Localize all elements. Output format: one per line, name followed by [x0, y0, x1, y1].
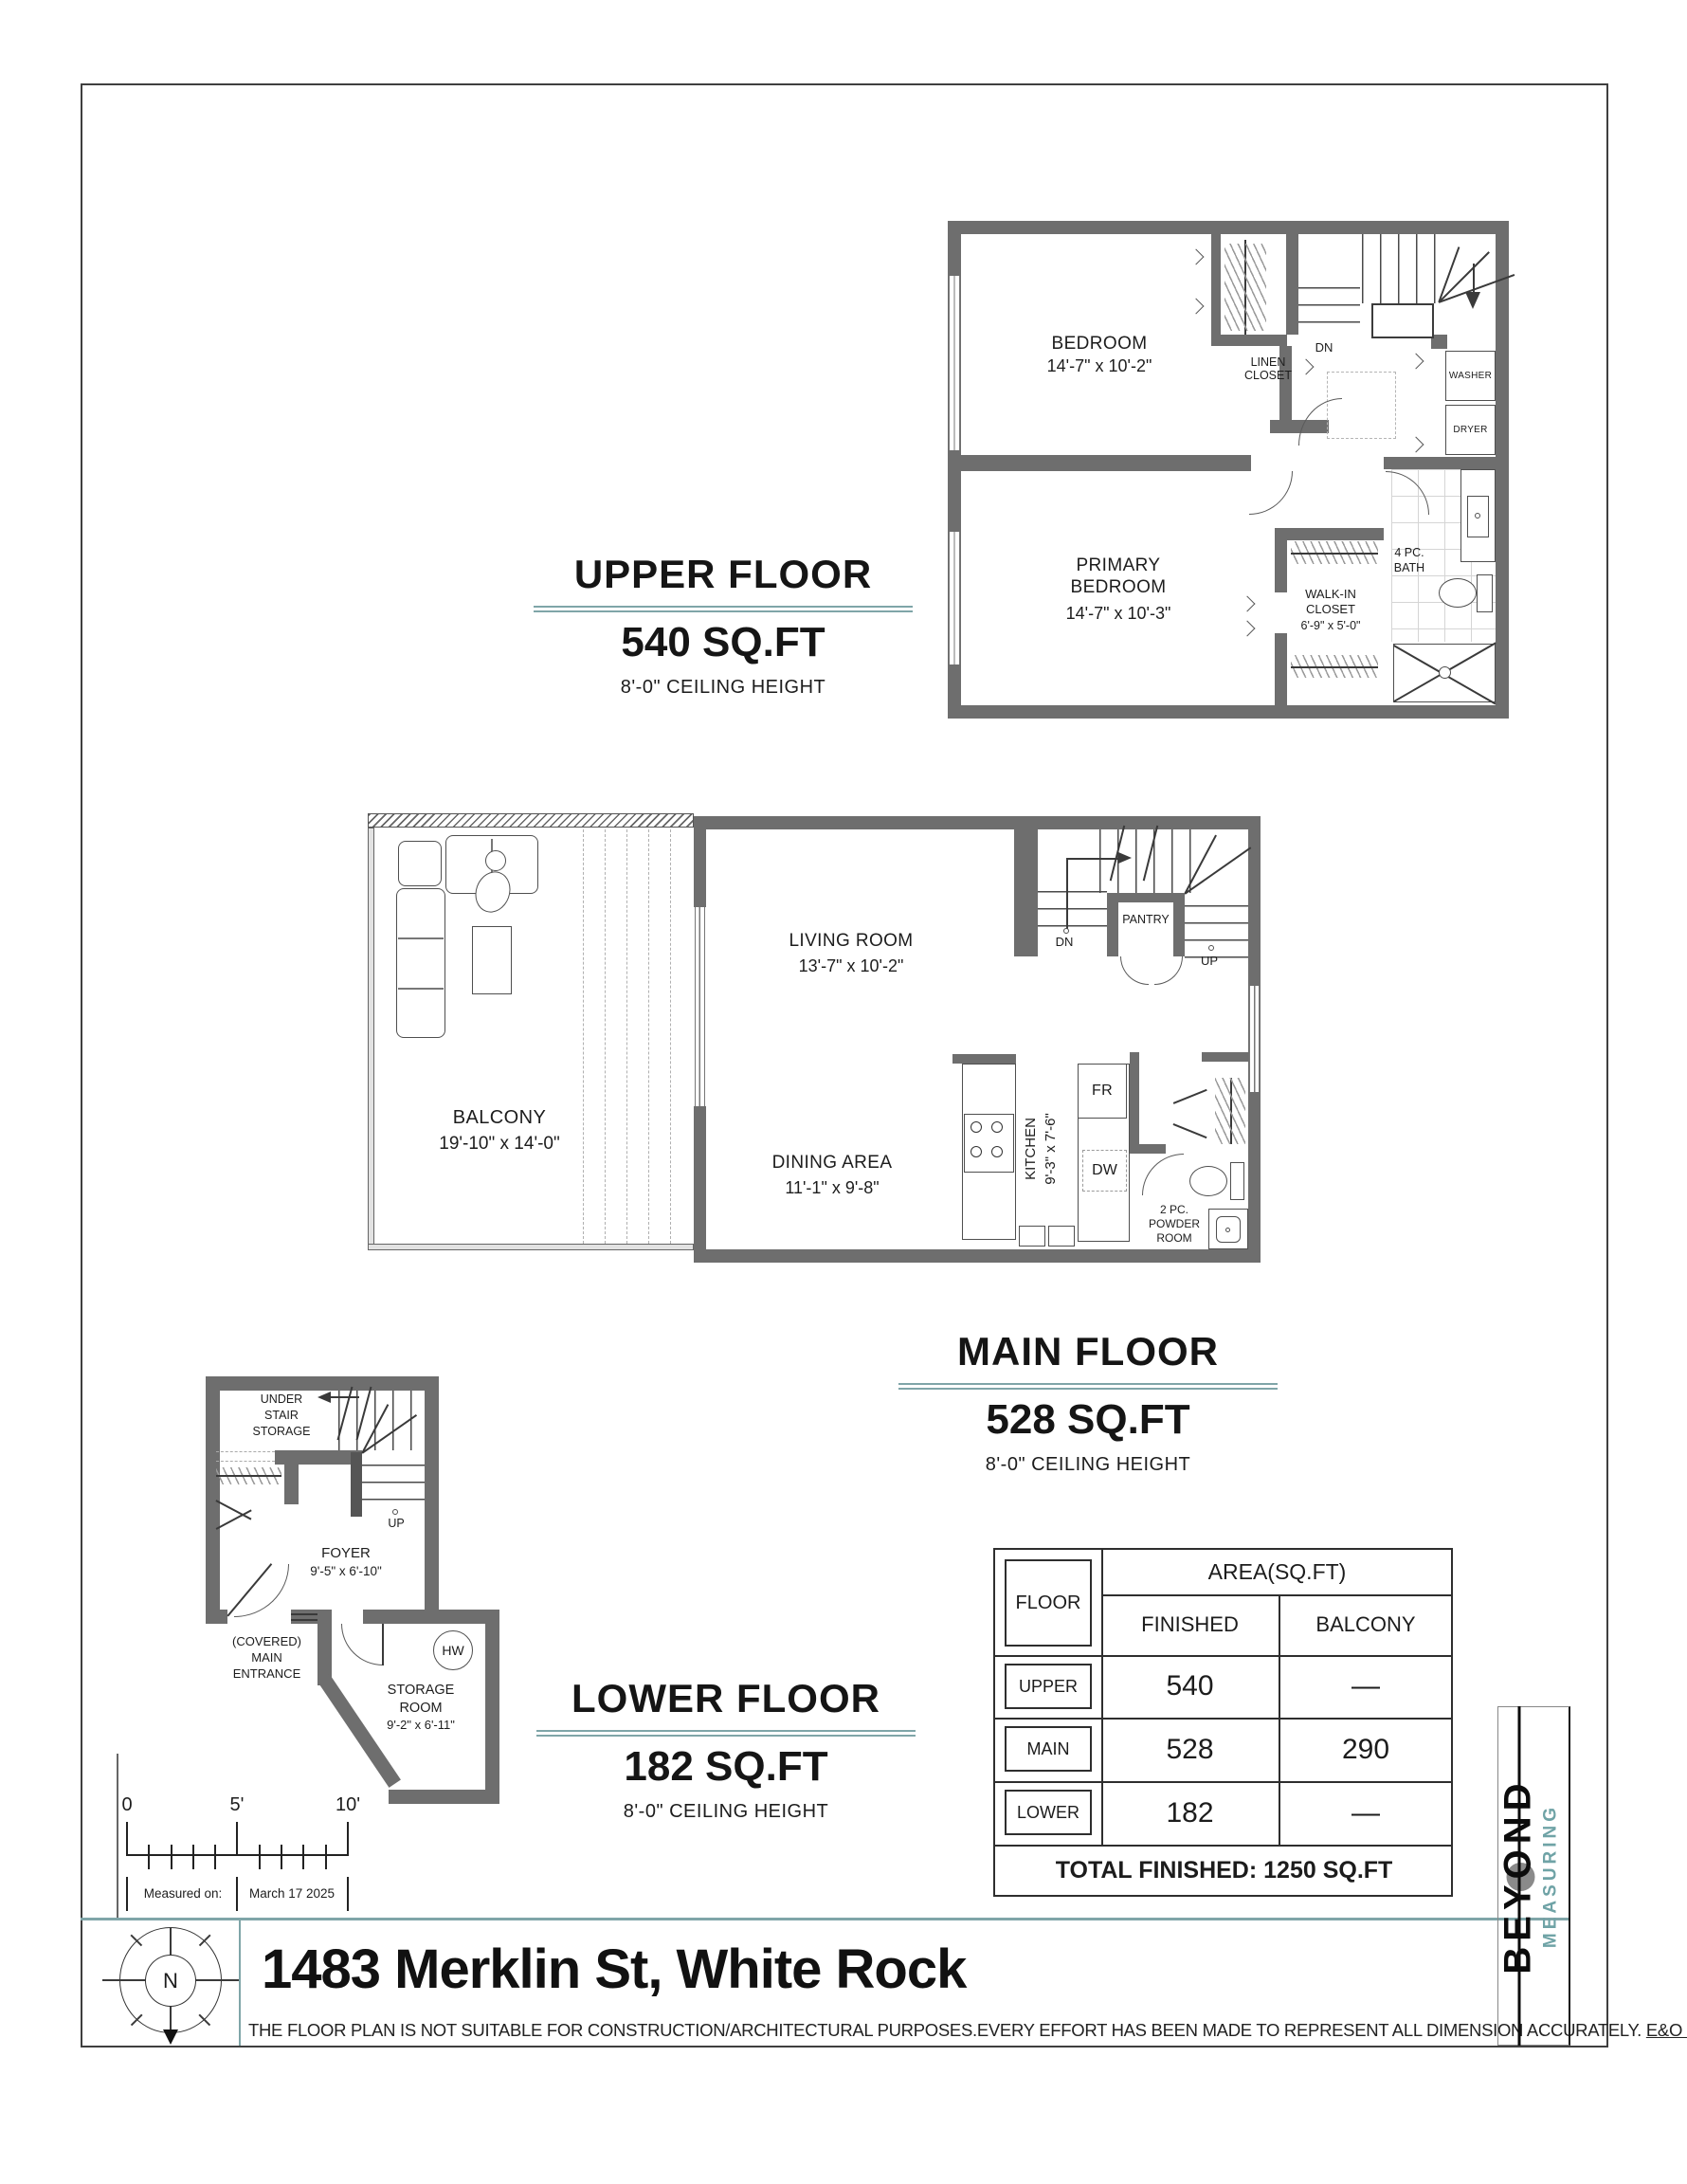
section-title: LOWER FLOOR	[517, 1676, 934, 1721]
scale-major-tick	[347, 1822, 349, 1856]
table-row-finished: 540	[1101, 1655, 1279, 1718]
scale-minor-tick	[148, 1845, 150, 1869]
scale-minor-tick	[302, 1845, 304, 1869]
kitchen-dims: 9'-3" x 7'-6"	[1041, 1092, 1061, 1206]
table-row-floor: UPPER	[1005, 1664, 1092, 1709]
wall	[1130, 1052, 1139, 1154]
toilet-tank	[1477, 574, 1493, 612]
disclaimer-text: THE FLOOR PLAN IS NOT SUITABLE FOR CONST…	[248, 2020, 1646, 2040]
dishwasher: DW	[1082, 1150, 1127, 1192]
shower	[1393, 644, 1496, 702]
wall	[1014, 816, 1038, 956]
balcony-dims: 19'-10" x 14'-0"	[405, 1133, 594, 1155]
bifold-door-icon	[1408, 354, 1424, 370]
scale-major-tick	[126, 1822, 128, 1856]
dining-area-label: DINING AREA	[737, 1152, 927, 1174]
south-arrow-icon	[163, 2029, 178, 2045]
upper-floor-title-block: UPPER FLOOR 540 SQ.FT 8'-0" CEILING HEIG…	[515, 552, 932, 699]
toilet-bowl	[1439, 578, 1477, 608]
living-room-dims: 13'-7" x 10'-2"	[756, 956, 946, 977]
kitchen-name: KITCHEN	[1021, 1092, 1041, 1206]
eo-insured-link[interactable]: E&O INSURED	[1646, 2020, 1687, 2040]
wall	[694, 829, 706, 907]
wall	[389, 1790, 499, 1804]
logo-strike-line	[1518, 1706, 1521, 2046]
wall	[1286, 234, 1298, 335]
door-leaf	[1173, 1089, 1207, 1104]
section-area: 182 SQ.FT	[517, 1743, 934, 1791]
dining-area-dims: 11'-1" x 9'-8"	[737, 1178, 927, 1199]
deck-line	[670, 829, 671, 1244]
title-underline	[898, 1383, 1278, 1390]
scale-major-tick	[236, 1822, 238, 1856]
stair-arrow-line	[331, 1396, 359, 1398]
door-arc	[234, 1564, 289, 1617]
door-arc	[1120, 956, 1149, 985]
shower-drain-icon	[1439, 666, 1451, 679]
area-table: FLOOR AREA(SQ.FT) FINISHED BALCONY UPPER…	[993, 1548, 1453, 1897]
dryer: DRYER	[1445, 405, 1496, 455]
burner-icon	[991, 1121, 1003, 1133]
wall	[1275, 633, 1287, 705]
linen-closet-label: LINEN CLOSET	[1232, 355, 1304, 383]
compass-south-stem	[170, 2018, 172, 2029]
main-floor-title-block: MAIN FLOOR 528 SQ.FT 8'-0" CEILING HEIGH…	[880, 1329, 1297, 1476]
stair-treads	[1099, 829, 1191, 893]
compass: N	[95, 1920, 246, 2046]
sliding-door	[695, 907, 705, 1106]
table-row-floor: MAIN	[1005, 1726, 1092, 1772]
scale-separator	[347, 1877, 349, 1911]
address-title: 1483 Merklin St, White Rock	[262, 1938, 966, 2001]
table-row-finished: 528	[1101, 1718, 1279, 1781]
scale-zero-label: 0	[117, 1793, 137, 1816]
door-leaf	[1173, 1123, 1207, 1138]
door-arc	[1154, 956, 1183, 985]
storage-room-dims: 9'-2" x 6'-11"	[369, 1718, 473, 1733]
sofa	[396, 888, 445, 1038]
toilet-bowl	[1189, 1166, 1227, 1196]
wall	[1211, 234, 1221, 346]
shelf-line	[216, 1461, 275, 1462]
wall	[425, 1376, 439, 1624]
stair-direction-label: DN	[1303, 340, 1345, 355]
wall	[1275, 528, 1384, 540]
toilet-tank	[1230, 1162, 1244, 1200]
wall	[1496, 221, 1509, 719]
lower-floor-plan: UP UNDER STAIR STORAGE FOYER 9'-5" x 6'-…	[206, 1376, 501, 1819]
window	[1249, 986, 1260, 1092]
burner-icon	[970, 1121, 982, 1133]
balcony-railing	[368, 1244, 694, 1250]
scale-separator	[236, 1877, 238, 1911]
door-arc	[1298, 398, 1342, 446]
walk-in-closet-dims: 6'-9" x 5'-0"	[1279, 619, 1382, 633]
section-ceiling: 8'-0" CEILING HEIGHT	[880, 1454, 1297, 1476]
kitchen-label: KITCHEN 9'-3" x 7'-6"	[1021, 1092, 1064, 1206]
down-arrow-icon	[1465, 292, 1480, 309]
wall	[1202, 1052, 1248, 1062]
section-ceiling: 8'-0" CEILING HEIGHT	[515, 677, 932, 699]
wall	[961, 455, 1251, 471]
title-underline	[534, 606, 913, 612]
balcony-header-cell: BALCONY	[1279, 1594, 1453, 1655]
stair-direction-label: DN	[1043, 935, 1085, 950]
under-stair-storage-label: UNDER STAIR STORAGE	[249, 1392, 314, 1440]
section-title: UPPER FLOOR	[515, 552, 932, 597]
table-row-balcony: —	[1279, 1781, 1453, 1845]
main-entrance-label: (COVERED) MAIN ENTRANCE	[217, 1634, 317, 1683]
walk-in-closet-label: WALK-IN CLOSET	[1279, 587, 1382, 618]
wall	[206, 1610, 227, 1624]
scale-separator	[126, 1877, 128, 1911]
pantry-label: PANTRY	[1109, 913, 1183, 927]
disclaimer: THE FLOOR PLAN IS NOT SUITABLE FOR CONST…	[248, 2020, 1499, 2041]
scale-minor-tick	[214, 1845, 216, 1869]
balcony-hatched-wall	[368, 813, 694, 828]
sink-drain-icon	[1475, 513, 1480, 519]
threshold-line	[291, 1619, 317, 1621]
burner-icon	[991, 1146, 1003, 1157]
bifold-door-icon	[1240, 596, 1256, 612]
wall	[291, 1610, 332, 1624]
wall	[694, 1249, 1261, 1263]
finished-header-cell: FINISHED	[1101, 1594, 1279, 1655]
bifold-door-icon	[1188, 249, 1205, 265]
stair-direction-label: UP	[1188, 954, 1230, 969]
person-figure	[485, 850, 506, 871]
wall	[363, 1610, 499, 1624]
storage-room-label: STORAGE ROOM	[383, 1682, 459, 1718]
bath-label: 4 PC. BATH	[1379, 545, 1440, 576]
section-ceiling: 8'-0" CEILING HEIGHT	[517, 1801, 934, 1823]
shelf-line	[216, 1451, 275, 1452]
area-header-cell: AREA(SQ.FT)	[1101, 1550, 1453, 1594]
wall	[694, 1106, 706, 1249]
window	[949, 276, 960, 450]
wall	[284, 1450, 299, 1504]
scale-minor-tick	[171, 1845, 172, 1869]
door-arc	[1142, 1154, 1184, 1195]
wall	[1275, 540, 1287, 592]
balcony-label: BALCONY	[405, 1106, 594, 1129]
window	[949, 532, 960, 664]
stair-treads	[338, 1391, 424, 1450]
kitchen-sink	[1048, 1226, 1075, 1247]
logo-secondary-text: MEASURING	[1541, 1706, 1562, 2046]
section-title: MAIN FLOOR	[880, 1329, 1297, 1374]
measured-date: March 17 2025	[240, 1886, 344, 1902]
coffee-table	[472, 926, 512, 994]
table-row-balcony: 290	[1279, 1718, 1453, 1781]
burner-icon	[970, 1146, 982, 1157]
closet-hangers	[1215, 1078, 1245, 1144]
primary-bedroom-dims: 14'-7" x 10'-3"	[1024, 604, 1213, 625]
threshold-line	[291, 1613, 317, 1615]
sink-drain-icon	[1225, 1228, 1230, 1232]
deck-line	[626, 829, 627, 1244]
section-area: 528 SQ.FT	[880, 1396, 1297, 1444]
scale-minor-tick	[259, 1845, 261, 1869]
door-arc	[341, 1624, 383, 1665]
arrow-icon	[1118, 852, 1132, 864]
stair-winder	[1185, 846, 1251, 894]
stair-arrow-line	[1066, 858, 1121, 860]
lower-floor-title-block: LOWER FLOOR 182 SQ.FT 8'-0" CEILING HEIG…	[517, 1676, 934, 1823]
stair-treads	[1038, 891, 1107, 934]
scale-minor-tick	[325, 1845, 327, 1869]
wall	[694, 816, 1261, 829]
beyond-measuring-logo: BEYOND MEASURING	[1497, 1706, 1570, 2046]
wall	[1384, 457, 1509, 469]
stair-center-wall	[351, 1452, 362, 1517]
door-arc	[1249, 471, 1293, 515]
bedroom-dims: 14'-7" x 10'-2"	[1005, 356, 1194, 377]
stair-arrow-line	[1066, 858, 1068, 932]
fridge: FR	[1078, 1064, 1127, 1119]
door-leaf	[216, 1509, 252, 1529]
stair-treads	[1362, 234, 1436, 303]
hot-water-tank: HW	[433, 1630, 473, 1670]
balcony-railing	[368, 828, 374, 1250]
deck-line	[605, 829, 606, 1244]
table-row-finished: 182	[1101, 1781, 1279, 1845]
foyer-dims: 9'-5" x 6'-10"	[289, 1564, 403, 1579]
scale-minor-tick	[281, 1845, 282, 1869]
scale-ten-label: 10'	[333, 1793, 363, 1816]
wall	[948, 221, 1509, 234]
wall	[206, 1376, 439, 1391]
bifold-door-icon	[1188, 299, 1205, 315]
compass-north-label: N	[145, 1955, 196, 2007]
scale-five-label: 5'	[225, 1793, 249, 1816]
bifold-door-icon	[1240, 621, 1256, 637]
armchair	[398, 841, 442, 886]
closet-hangers	[1224, 244, 1266, 331]
washer: WASHER	[1445, 351, 1496, 401]
closet-rod	[216, 1475, 281, 1477]
living-room-label: LIVING ROOM	[756, 930, 946, 952]
scale-bar: 0 5' 10' Measured on: March 17 2025	[117, 1754, 354, 1918]
sofa-cushion-line	[398, 988, 444, 990]
bedroom-label: BEDROOM	[1005, 333, 1194, 355]
stair-start-dot	[392, 1509, 398, 1515]
main-floor-plan: BALCONY 19'-10" x 14'-0" PANTRY DN UP	[351, 801, 1261, 1263]
closet-rod	[1291, 666, 1378, 668]
wall	[485, 1624, 499, 1804]
section-area: 540 SQ.FT	[515, 619, 932, 666]
stairwell-opening	[1371, 303, 1434, 338]
deck-line	[583, 829, 584, 1244]
table-row-floor: LOWER	[1005, 1790, 1092, 1835]
arrow-icon	[317, 1392, 331, 1403]
sofa-cushion-line	[398, 937, 444, 939]
scale-border-line	[117, 1754, 118, 1918]
stair-treads	[353, 1465, 425, 1507]
stair-start-dot	[1063, 928, 1069, 934]
bifold-door-icon	[1408, 437, 1424, 453]
table-total: TOTAL FINISHED: 1250 SQ.FT	[995, 1847, 1453, 1895]
scale-ruler-line	[126, 1854, 349, 1856]
door-leaf	[382, 1624, 384, 1665]
floor-header-cell: FLOOR	[1005, 1559, 1092, 1647]
upper-floor-plan: DN WASHER DRYER LINEN CLOSET BEDROOM 14'…	[948, 221, 1509, 719]
stair-arrow-line	[1473, 264, 1475, 292]
powder-room-label: 2 PC. POWDER ROOM	[1139, 1203, 1209, 1246]
stair-treads	[1298, 287, 1360, 335]
logo-rotated-wrap: BEYOND MEASURING	[1497, 1706, 1570, 2046]
closet-rod	[1291, 553, 1378, 555]
kitchen-sink	[1019, 1226, 1045, 1247]
table-row-balcony: —	[1279, 1655, 1453, 1718]
stair-direction-label: UP	[379, 1517, 413, 1531]
door-leaf	[216, 1500, 252, 1520]
wall	[1211, 335, 1287, 346]
wall	[952, 1054, 1016, 1064]
primary-bedroom-label: PRIMARY BEDROOM	[1061, 555, 1175, 598]
scale-minor-tick	[192, 1845, 194, 1869]
footer-top-border	[81, 1918, 1569, 1920]
deck-line	[648, 829, 649, 1244]
measured-on-label: Measured on:	[132, 1886, 234, 1902]
title-underline	[536, 1730, 916, 1737]
foyer-label: FOYER	[299, 1545, 393, 1562]
wall	[1139, 1144, 1166, 1154]
stair-start-dot	[1208, 945, 1214, 951]
floor-plan-sheet: DN WASHER DRYER LINEN CLOSET BEDROOM 14'…	[0, 0, 1687, 2184]
wall	[948, 705, 1509, 719]
